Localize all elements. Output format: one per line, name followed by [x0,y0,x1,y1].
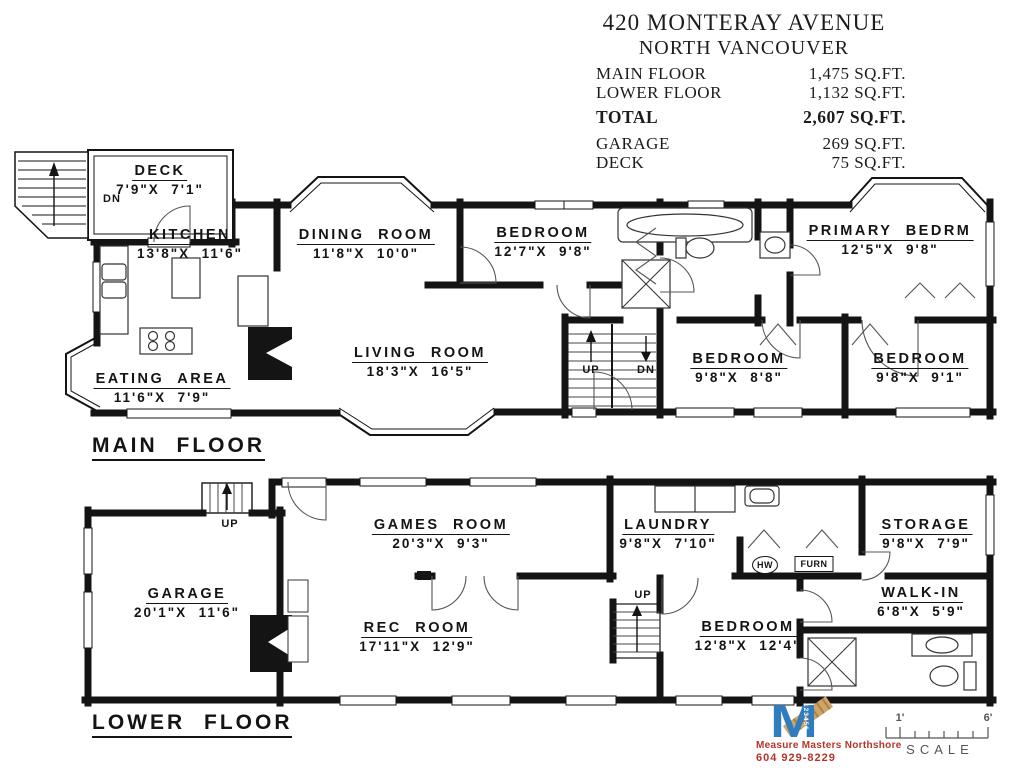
room-name: BEDROOM [871,351,968,369]
room-dims: 12'7"X 9'8" [494,244,591,259]
company-phone: 604 929-8229 [756,752,906,765]
room-label-bedroom-3: BEDROOM 9'8"X 9'1" [871,350,968,385]
room-dims: 18'3"X 16'5" [352,364,488,379]
room-dims: 9'8"X 9'1" [871,370,968,385]
room-label-kitchen: KITCHEN 13'8"X 11'6" [137,226,243,261]
main-stairs-dn-label: DN [637,364,655,376]
main-bath-fixtures [618,208,790,308]
area-value: 1,132 SQ.FT. [809,83,906,102]
area-label: TOTAL [596,108,658,127]
area-row-lower-floor: LOWER FLOOR 1,132 SQ.FT. [596,83,906,102]
room-name: WALK-IN [879,585,963,603]
title-block: 420 MONTERAY AVENUE NORTH VANCOUVER MAIN… [558,10,930,172]
deck-dn-label: DN [103,193,121,205]
scale-left-value: 1' [896,712,905,724]
room-label-storage: STORAGE 9'8"X 7'9" [880,516,973,551]
room-name: BEDROOM [699,619,796,637]
logo-tape-digits: 123456 [802,703,809,731]
room-dims: 7'9"X 7'1" [116,182,204,197]
room-label-deck: DECK 7'9"X 7'1" [116,162,204,197]
main-floor-title: MAIN FLOOR [92,434,265,461]
lower-closet-doors [748,530,838,548]
main-fireplace [248,327,292,380]
room-name: GARAGE [146,586,229,604]
area-label: MAIN FLOOR [596,64,706,83]
room-name: DECK [132,163,187,181]
laundry-fixtures [655,486,779,512]
room-name: STORAGE [880,517,973,535]
lower-mid-up-arrow [632,605,642,616]
room-dims: 12'8"X 12'4" [695,638,802,653]
room-dims: 20'1"X 11'6" [134,605,240,620]
room-name: BEDROOM [494,225,591,243]
room-label-garage: GARAGE 20'1"X 11'6" [134,585,240,620]
area-value: 2,607 SQ.FT. [803,108,906,127]
room-label-games-room: GAMES ROOM 20'3"X 9'3" [372,516,510,551]
lower-mid-up-label: UP [634,589,651,601]
hot-water-tank-label: HW [752,556,778,574]
room-dims: 12'5"X 9'8" [807,242,974,257]
room-dims: 9'8"X 7'10" [619,536,716,551]
lower-entry-up-arrow [222,483,232,494]
scale-label: SCALE [906,742,974,757]
kitchen-fixtures [100,246,268,354]
room-label-eating-area: EATING AREA 11'6"X 7'9" [94,370,231,405]
room-label-walk-in: WALK-IN 6'8"X 5'9" [877,584,965,619]
address-line-1: 420 MONTERAY AVENUE [558,10,930,36]
room-label-bedroom-1: BEDROOM 12'7"X 9'8" [494,224,591,259]
area-value: 75 SQ.FT. [831,153,906,172]
room-dims: 9'8"X 8'8" [690,370,787,385]
up-arrow-head [586,330,596,342]
room-dims: 9'8"X 7'9" [880,536,973,551]
lower-bath-fixtures [808,634,976,690]
scale-right-value: 6' [984,712,993,724]
room-name: LIVING ROOM [352,345,488,363]
address-line-2: NORTH VANCOUVER [558,37,930,60]
furnace-label: FURN [795,556,834,572]
room-name: PRIMARY BEDRM [807,223,974,241]
area-summary: MAIN FLOOR 1,475 SQ.FT. LOWER FLOOR 1,13… [596,64,906,172]
room-name: REC ROOM [362,620,473,638]
room-dims: 11'6"X 7'9" [94,390,231,405]
room-label-rec-room: REC ROOM 17'11"X 12'9" [359,619,475,654]
logo-m-letter: M [770,694,818,748]
room-dims: 17'11"X 12'9" [359,639,475,654]
area-label: DECK [596,153,644,172]
room-label-living-room: LIVING ROOM 18'3"X 16'5" [352,344,488,379]
lower-closets [288,580,308,662]
room-name: DINING ROOM [297,227,435,245]
area-row-deck: DECK 75 SQ.FT. [596,153,906,172]
area-row-main-floor: MAIN FLOOR 1,475 SQ.FT. [596,64,906,83]
room-label-laundry: LAUNDRY 9'8"X 7'10" [619,516,716,551]
room-dims: 11'8"X 10'0" [297,246,435,261]
room-name: KITCHEN [147,227,233,245]
room-dims: 6'8"X 5'9" [877,604,965,619]
room-label-bedroom-2: BEDROOM 9'8"X 8'8" [690,350,787,385]
room-name: BEDROOM [690,351,787,369]
area-label: GARAGE [596,134,670,153]
floorplan-page: 420 MONTERAY AVENUE NORTH VANCOUVER MAIN… [0,0,1024,768]
room-name: LAUNDRY [622,517,714,535]
lower-entry-up-label: UP [221,518,238,530]
area-label: LOWER FLOOR [596,83,722,102]
company-logo: M 123456 Measure Masters Northshore 604 … [756,700,906,764]
room-label-dining-room: DINING ROOM 11'8"X 10'0" [297,226,435,261]
measure-masters-logo-icon: M 123456 [756,700,846,740]
room-label-primary-bedrm: PRIMARY BEDRM 12'5"X 9'8" [807,222,974,257]
area-row-garage: GARAGE 269 SQ.FT. [596,134,906,153]
area-value: 1,475 SQ.FT. [809,64,906,83]
area-row-total: TOTAL 2,607 SQ.FT. [596,108,906,127]
room-dims: 13'8"X 11'6" [137,246,243,261]
main-stairs-up-label: UP [582,364,599,376]
lower-floor-title: LOWER FLOOR [92,711,292,738]
room-name: GAMES ROOM [372,517,510,535]
room-dims: 20'3"X 9'3" [372,536,510,551]
area-value: 269 SQ.FT. [822,134,906,153]
room-label-bedroom-lower: BEDROOM 12'8"X 12'4" [695,618,802,653]
room-name: EATING AREA [94,371,231,389]
